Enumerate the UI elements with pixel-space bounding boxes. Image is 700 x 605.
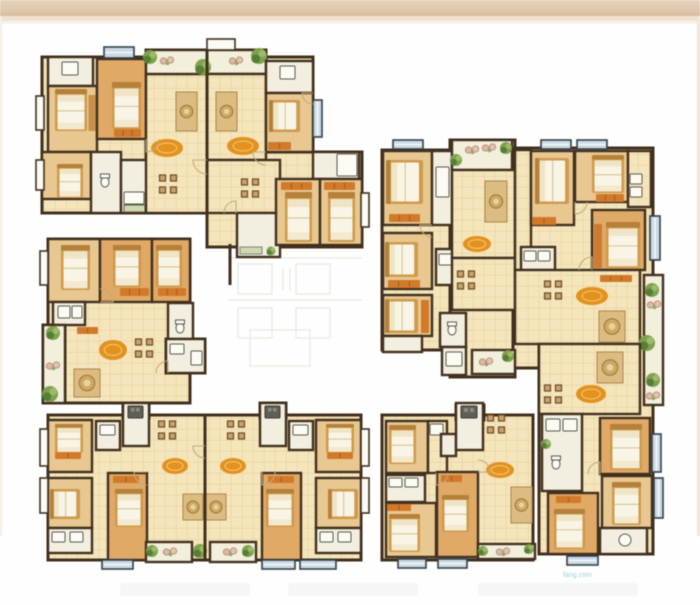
svg-text:fang.com: fang.com bbox=[563, 572, 592, 579]
